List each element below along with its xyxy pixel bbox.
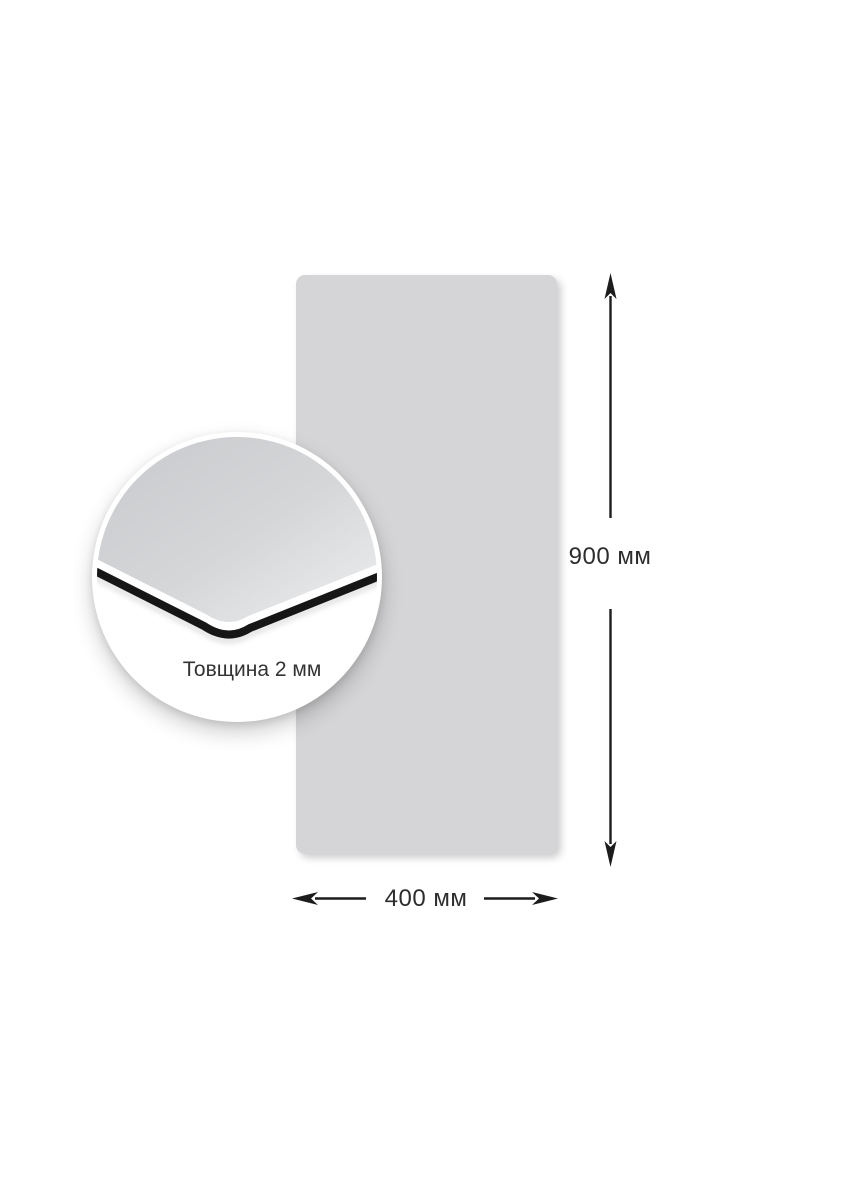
thickness-label: Товщина 2 мм [157,657,347,683]
height-dimension-label: 900 мм [545,544,675,570]
arrow-left-icon [292,892,318,905]
arrow-right-icon [532,892,558,905]
height-dimension [605,273,617,867]
product-dimension-diagram: 900 мм 400 мм [0,0,851,1184]
arrow-up-icon [605,273,617,299]
arrow-down-icon [605,841,617,867]
width-dimension-label: 400 мм [361,886,491,912]
